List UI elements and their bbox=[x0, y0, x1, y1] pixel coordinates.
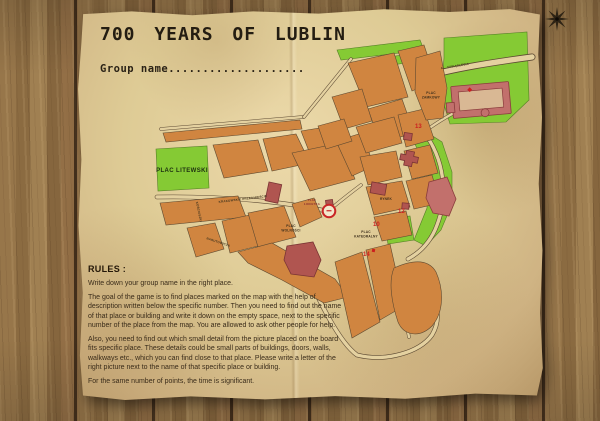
svg-text:ZAMKOWY: ZAMKOWY bbox=[422, 96, 441, 100]
church-building bbox=[265, 182, 282, 203]
building-block bbox=[391, 262, 442, 334]
building-block bbox=[213, 140, 268, 178]
rules-section: RULES : Write down your group name in th… bbox=[88, 264, 347, 391]
svg-text:PLAC: PLAC bbox=[426, 91, 436, 95]
castle-building bbox=[445, 82, 512, 120]
label-plac-litewski: PLAC LITEWSKI bbox=[156, 168, 208, 174]
map-marker-12: 12 bbox=[398, 209, 405, 215]
landmark-building bbox=[403, 132, 412, 140]
svg-text:PLAC: PLAC bbox=[361, 230, 371, 234]
map-marker-14: 14 bbox=[363, 252, 370, 258]
rules-heading: RULES : bbox=[88, 264, 347, 274]
rules-paragraph: Also, you need to find out which small d… bbox=[88, 335, 347, 372]
trybunal-building bbox=[370, 182, 387, 195]
label-rynek: RYNEK bbox=[380, 197, 393, 201]
svg-text:KATEDRALNY: KATEDRALNY bbox=[354, 235, 378, 239]
svg-text:PLAC: PLAC bbox=[286, 224, 296, 228]
page-title: 700 YEARS OF LUBLIN bbox=[100, 24, 346, 45]
rules-paragraph: The goal of the game is to find places m… bbox=[88, 293, 347, 330]
map-marker-10: 10 bbox=[373, 222, 380, 228]
building-block bbox=[360, 151, 402, 185]
road bbox=[333, 185, 361, 207]
label-plac-katedralny: PLAC KATEDRALNY bbox=[354, 230, 378, 239]
svg-text:WOLNOŚCI: WOLNOŚCI bbox=[281, 228, 300, 233]
group-name-field: Group name.................... bbox=[100, 63, 305, 75]
map-marker-13: 13 bbox=[415, 124, 422, 130]
wood-background: 700 YEARS OF LUBLIN Group name..........… bbox=[0, 0, 600, 421]
rules-paragraph: For the same number of points, the time … bbox=[88, 377, 347, 386]
rules-paragraph: Write down your group name in the right … bbox=[88, 279, 347, 288]
label-plac-lokietka: PLAC ŁOKIETKA bbox=[304, 198, 320, 206]
svg-text:ŁOKIETKA: ŁOKIETKA bbox=[304, 202, 320, 206]
start-circle-marker bbox=[323, 205, 336, 218]
building-block bbox=[415, 51, 447, 120]
point-marker-icon bbox=[372, 249, 375, 252]
